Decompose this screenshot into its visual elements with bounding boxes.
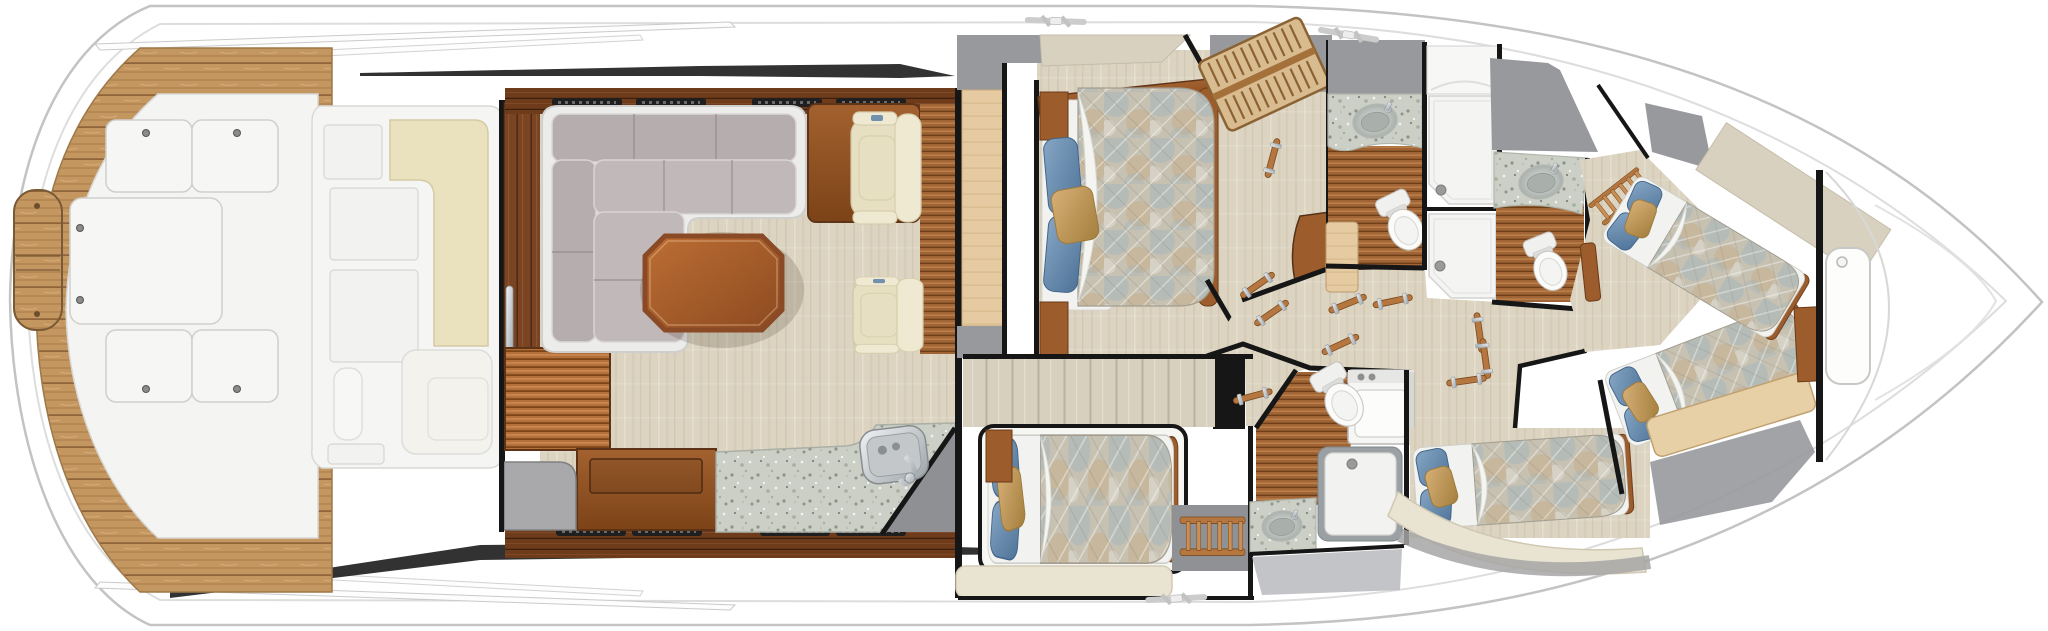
nightstand-bottom: [1040, 302, 1068, 357]
nightstand-top: [1040, 92, 1068, 140]
stairwell-block-bottom: [957, 326, 1007, 358]
mid-guest-berth: [1412, 433, 1634, 530]
floorplan-canvas: [0, 0, 2048, 631]
stairwell-maple-panel: [962, 90, 1003, 326]
hatch-latch: [1837, 257, 1847, 267]
cedar-floor: [505, 348, 610, 450]
sofa-back-cushions: [552, 114, 796, 162]
storage-panel-3: [330, 270, 418, 362]
aft-guest-berth: [988, 435, 1178, 563]
sofa-seat-cushions: [594, 160, 796, 214]
head1-cabinet: [1326, 222, 1358, 292]
berth-nightstand: [986, 430, 1012, 482]
coffee-table: [640, 232, 804, 348]
transom-platform-door: [14, 190, 62, 330]
bow-bulkhead: [1816, 170, 1823, 462]
storage-panel-2: [330, 188, 418, 260]
sofa-back-arm: [552, 160, 596, 342]
shower-stall-2: [1429, 214, 1496, 298]
bow-deck-hatch: [1826, 248, 1870, 384]
head3-hull-gray: [1252, 549, 1402, 595]
berth-duvet: [1078, 88, 1214, 306]
head-1: [1326, 40, 1430, 292]
cabin-wall-bottom: [958, 596, 1254, 600]
louvered-panel: [963, 357, 1215, 427]
head1-top-cabinet: [1328, 40, 1425, 98]
shower-drain: [1436, 185, 1446, 195]
center-deck-hatch: [70, 198, 222, 324]
cooktop: [504, 462, 576, 530]
club-chair-2: [853, 277, 923, 353]
accent-pillow: [1050, 185, 1101, 245]
credenza-drawer: [590, 459, 702, 493]
stairwell-wall: [1002, 35, 1007, 357]
yacht-floorplan: [0, 0, 2048, 631]
club-chair-1: [851, 112, 921, 224]
head1-wall: [1422, 42, 1427, 270]
shower-drain: [1347, 459, 1357, 469]
mezzanine-seat-cushion: [402, 350, 492, 454]
mezzanine-step: [334, 368, 362, 440]
stairwell-block-top: [957, 35, 1007, 90]
seat-bench: [956, 566, 1172, 598]
shower-drain: [1435, 261, 1445, 271]
storage-panel-4: [328, 444, 384, 464]
salon: [499, 35, 1007, 598]
storage-panel-1: [324, 125, 382, 179]
master-wall-left: [1034, 80, 1039, 358]
cooktop-edge: [499, 460, 504, 532]
corridor-thick-wall: [1213, 357, 1245, 429]
cabin-wall-top: [963, 354, 1253, 359]
head1-wall-bottom: [1326, 266, 1424, 268]
coffee-table-top: [645, 236, 782, 330]
head3-shower: [1318, 447, 1402, 541]
